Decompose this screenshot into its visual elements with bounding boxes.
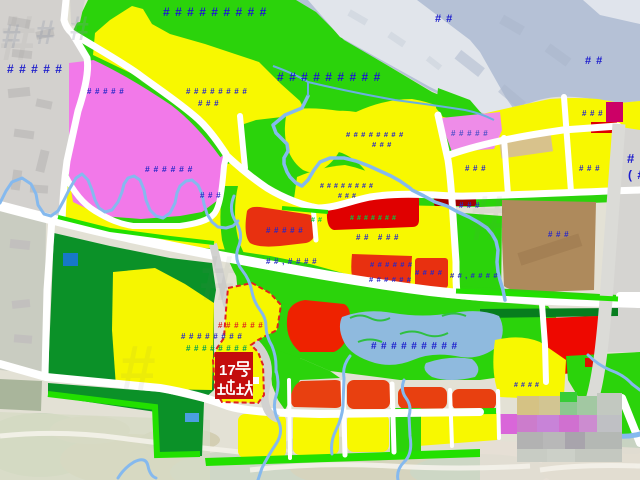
svg-text:######: ###### <box>218 321 266 330</box>
svg-text:(#: (# <box>628 168 640 182</box>
svg-text:#: # <box>0 2 36 74</box>
svg-text:##,####: ##,#### <box>450 271 501 280</box>
svg-text:###: ### <box>372 140 395 149</box>
svg-text:#: # <box>120 332 156 404</box>
svg-text:#####: ##### <box>451 129 491 138</box>
svg-text:17: 17 <box>219 362 236 379</box>
svg-text:##: ## <box>311 217 325 224</box>
svg-text:###: ### <box>579 164 603 173</box>
svg-text:###: ### <box>200 191 224 200</box>
svg-text:########: ######## <box>186 344 250 353</box>
svg-text:########: ######## <box>181 332 245 341</box>
svg-text:#: # <box>70 10 89 48</box>
svg-text:#####: ##### <box>87 87 127 96</box>
svg-text:##: ## <box>435 13 457 25</box>
svg-text:###: ### <box>465 164 489 173</box>
svg-text:###: ### <box>338 193 359 200</box>
svg-text:#####: ##### <box>266 226 306 235</box>
svg-text:######: ###### <box>370 260 415 269</box>
svg-text:#: # <box>627 151 640 166</box>
svg-text:###: ### <box>548 230 572 239</box>
svg-text:####: #### <box>514 382 542 389</box>
svg-text:########: ######## <box>186 87 250 96</box>
svg-text:#######: ####### <box>350 215 399 222</box>
svg-text:##,####: ##,#### <box>266 257 320 266</box>
svg-text:######: ###### <box>145 164 196 174</box>
svg-text:##: ## <box>585 55 607 67</box>
svg-text:#: # <box>470 182 506 254</box>
svg-text:###: ### <box>198 99 222 108</box>
svg-text:########: ######## <box>346 130 407 139</box>
svg-text:###: ### <box>582 109 606 118</box>
svg-text:#: # <box>36 14 55 52</box>
svg-text:#########: ######### <box>277 70 386 84</box>
svg-text:#########: ######### <box>371 341 462 352</box>
svg-text:#########: ######### <box>163 5 272 19</box>
svg-text:####: #### <box>415 268 445 277</box>
svg-text:######: ###### <box>369 275 414 284</box>
svg-text:## ###: ## ### <box>356 233 402 242</box>
svg-text:#: # <box>200 242 236 314</box>
svg-text:########: ######## <box>320 183 376 190</box>
